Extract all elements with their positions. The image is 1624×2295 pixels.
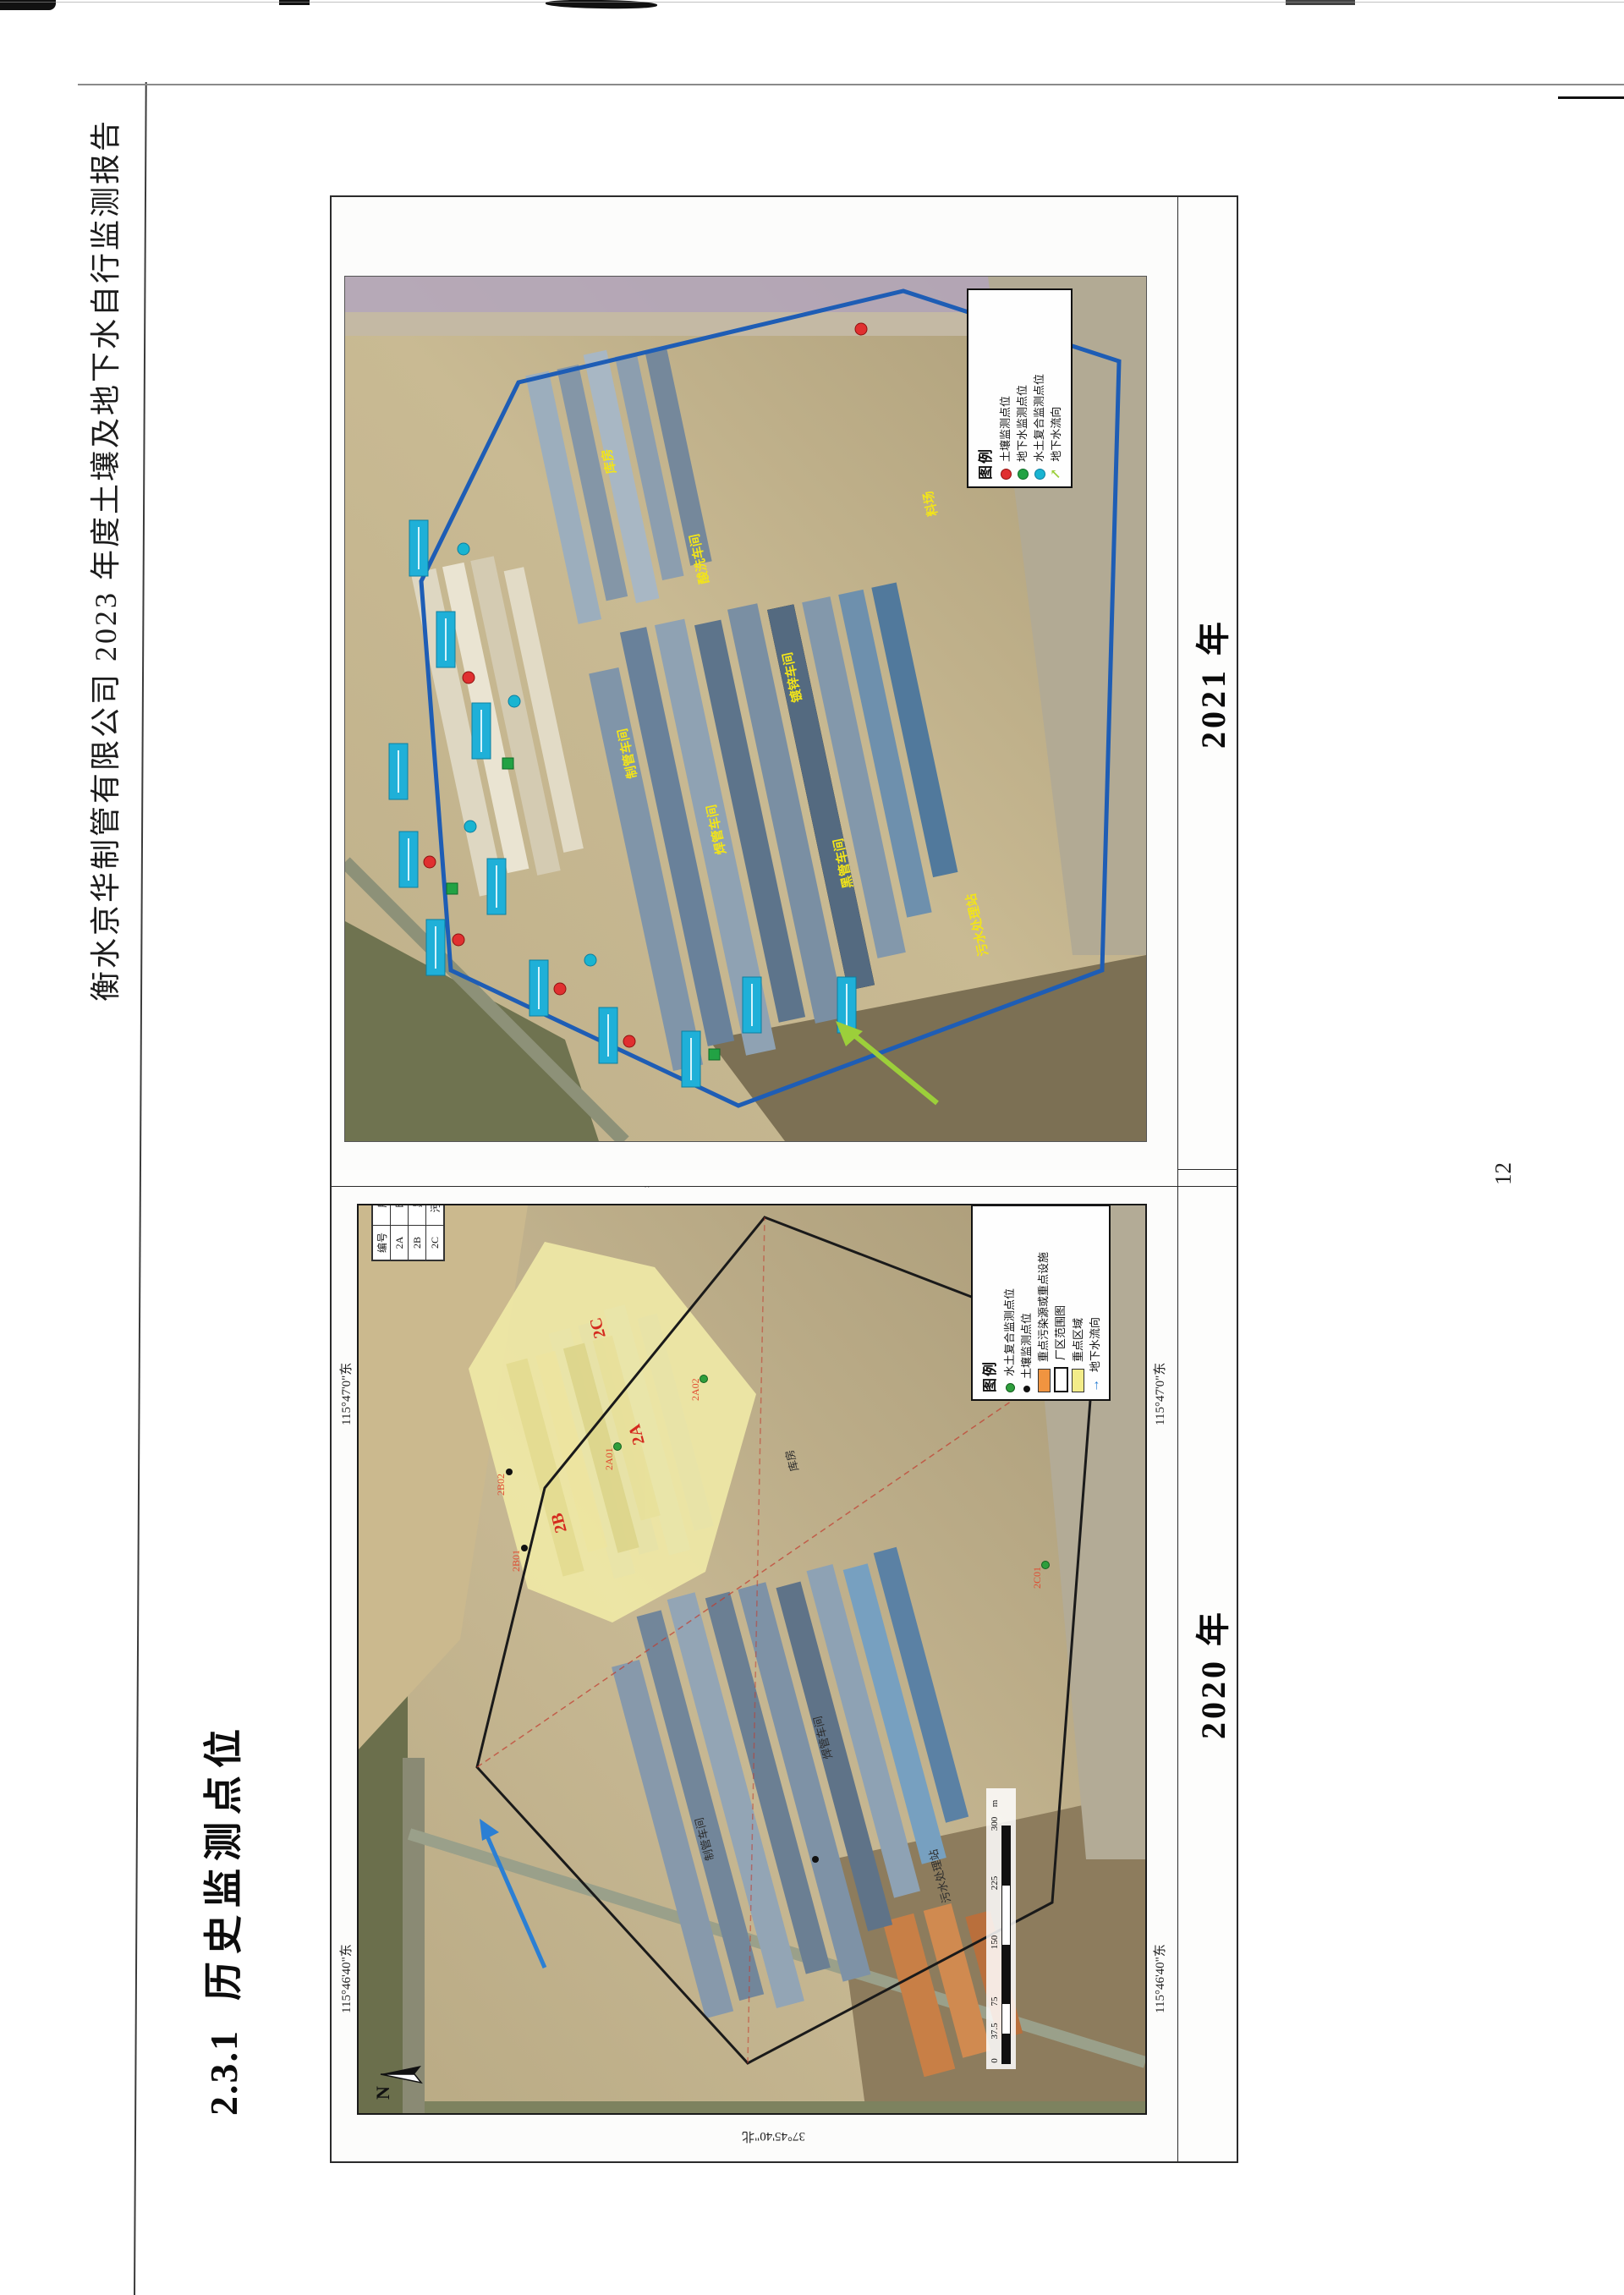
caption-divider <box>1177 197 1178 2161</box>
scale-tick: 0 <box>990 2058 1000 2063</box>
composite-point <box>614 1443 622 1451</box>
document-header: 衡水京华制管有限公司 2023 年度土壤及地下水自行监测报告 <box>81 118 125 1002</box>
point-label: 2A02 <box>689 1378 701 1401</box>
section-heading: 2.3.1历史监测点位 <box>193 1721 249 2116</box>
scale-tick: 300 <box>990 1817 1000 1831</box>
orange-rect-icon <box>1038 1369 1051 1392</box>
rotated-page-content: 衡水京华制管有限公司 2023 年度土壤及地下水自行监测报告 2.3.1历史监测… <box>0 0 1624 2295</box>
legend-2021: 图例 土壤监测点位 地下水监测点位 水土复合监测点位 ↗地下水流向 <box>967 288 1073 488</box>
caption-2021: 2021 年 <box>1184 197 1237 1170</box>
scale-tick: 37.5 <box>990 2023 1000 2039</box>
scale-unit: m <box>990 1800 1000 1808</box>
legend-label: 水土复合监测点位 <box>1031 374 1048 462</box>
scale-bar-segments <box>1001 1826 1011 2064</box>
section-title: 历史监测点位 <box>202 1721 245 2001</box>
table-cell: 污水处理站 <box>426 1204 444 1226</box>
table-cell: 暖气片厂 <box>391 1204 409 1226</box>
composite-point <box>1042 1562 1050 1569</box>
cyan-dot-icon <box>1034 469 1045 480</box>
legend-2020: 图例 水土复合监测点位 土壤监测点位 重点污染源或重点设施 厂区范围图 重点区域… <box>971 1205 1111 1401</box>
legend-title: 图例 <box>974 297 995 480</box>
green-dot-icon <box>1006 1383 1015 1392</box>
composite-point <box>700 1375 708 1383</box>
legend-label: 重点污染源或重点设施 <box>1035 1252 1052 1362</box>
table-cell: 黑管车间 <box>409 1204 426 1226</box>
scale-tick: 225 <box>990 1876 1000 1891</box>
soil-point <box>506 1469 513 1475</box>
legend-title: 图例 <box>978 1213 999 1392</box>
point-label: 2B01 <box>510 1550 522 1572</box>
green-arrow-icon: ↗ <box>1050 469 1063 480</box>
green-dot-icon <box>1018 469 1029 480</box>
red-dot-icon <box>1001 469 1012 480</box>
point-label: 2A01 <box>603 1447 615 1470</box>
area-table: 编号 所在区域 2A 暖气片厂 2B 黑管车间 2C 污水处理站 <box>372 1204 444 1260</box>
page-number: 12 <box>1490 1162 1517 1185</box>
map-panel-2020: 115°46'40"东 115°47'0"东 115°46'40"东 115°4… <box>332 1187 1177 2161</box>
table-header: 所在区域 <box>373 1204 391 1226</box>
table-header: 编号 <box>373 1226 391 1260</box>
black-dot-icon <box>1023 1386 1030 1392</box>
table-cell: 2B <box>409 1226 426 1260</box>
point-label: 2C01 <box>1031 1567 1043 1589</box>
soil-point <box>812 1856 819 1863</box>
coord-lat-left: 37°45'40"北 <box>742 2128 805 2146</box>
table-cell: 2C <box>426 1226 444 1260</box>
scale-tick: 150 <box>990 1935 1000 1950</box>
caption-2020: 2020 年 <box>1184 1187 1237 2161</box>
soil-point <box>521 1545 528 1551</box>
scale-ticks: 0 37.5 75 150 225 300 m <box>990 1793 1001 2064</box>
scan-edge-line <box>78 84 1624 85</box>
legend-label: 地下水流向 <box>1048 407 1065 462</box>
scale-tick: 75 <box>990 1997 1000 2007</box>
coord-lon-bottom-right: 115°47'0"东 <box>1150 1363 1168 1425</box>
legend-label: 土壤监测点位 <box>997 396 1014 462</box>
section-number: 2.3.1 <box>202 2029 245 2116</box>
outline-rect-icon <box>1054 1367 1068 1392</box>
coord-lon-top-left: 115°46'40"东 <box>337 1944 354 2013</box>
legend-label: 重点区域 <box>1070 1318 1087 1362</box>
yellow-rect-icon <box>1072 1369 1084 1392</box>
legend-label: 地下水监测点位 <box>1014 385 1031 462</box>
figure-frame: 2020 年 2021 年 115°46'40"东 115°47'0"东 115… <box>330 195 1238 2163</box>
legend-label: 地下水流向 <box>1087 1317 1104 1372</box>
point-label: 2B02 <box>495 1474 507 1496</box>
scale-bar: 0 37.5 75 150 225 300 m <box>986 1788 1016 2069</box>
coord-lon-bottom-left: 115°46'40"东 <box>1150 1944 1168 2013</box>
satellite-image-2021: 制管车间 焊管车间 镀锌车间 黑管车间 酸洗车间 库房 料场 污水处理站 <box>344 276 1147 1142</box>
coord-lat-right: 37°45'40"北 <box>640 1187 704 1190</box>
north-label: N <box>372 2086 393 2100</box>
table-cell: 2A <box>391 1226 409 1260</box>
legend-label: 水土复合监测点位 <box>1001 1288 1018 1376</box>
legend-label: 土壤监测点位 <box>1018 1313 1035 1379</box>
satellite-image-2020: 2B 2A 2C 2B01 2B02 2A01 2A02 2C01 <box>357 1204 1147 2115</box>
header-rule <box>134 82 147 2295</box>
coord-lon-top-right: 115°47'0"东 <box>337 1363 354 1425</box>
blue-arrow-icon: → <box>1089 1379 1102 1392</box>
legend-label: 厂区范围图 <box>1052 1305 1069 1360</box>
map-panel-2021: 制管车间 焊管车间 镀锌车间 黑管车间 酸洗车间 库房 料场 污水处理站 <box>332 197 1177 1170</box>
